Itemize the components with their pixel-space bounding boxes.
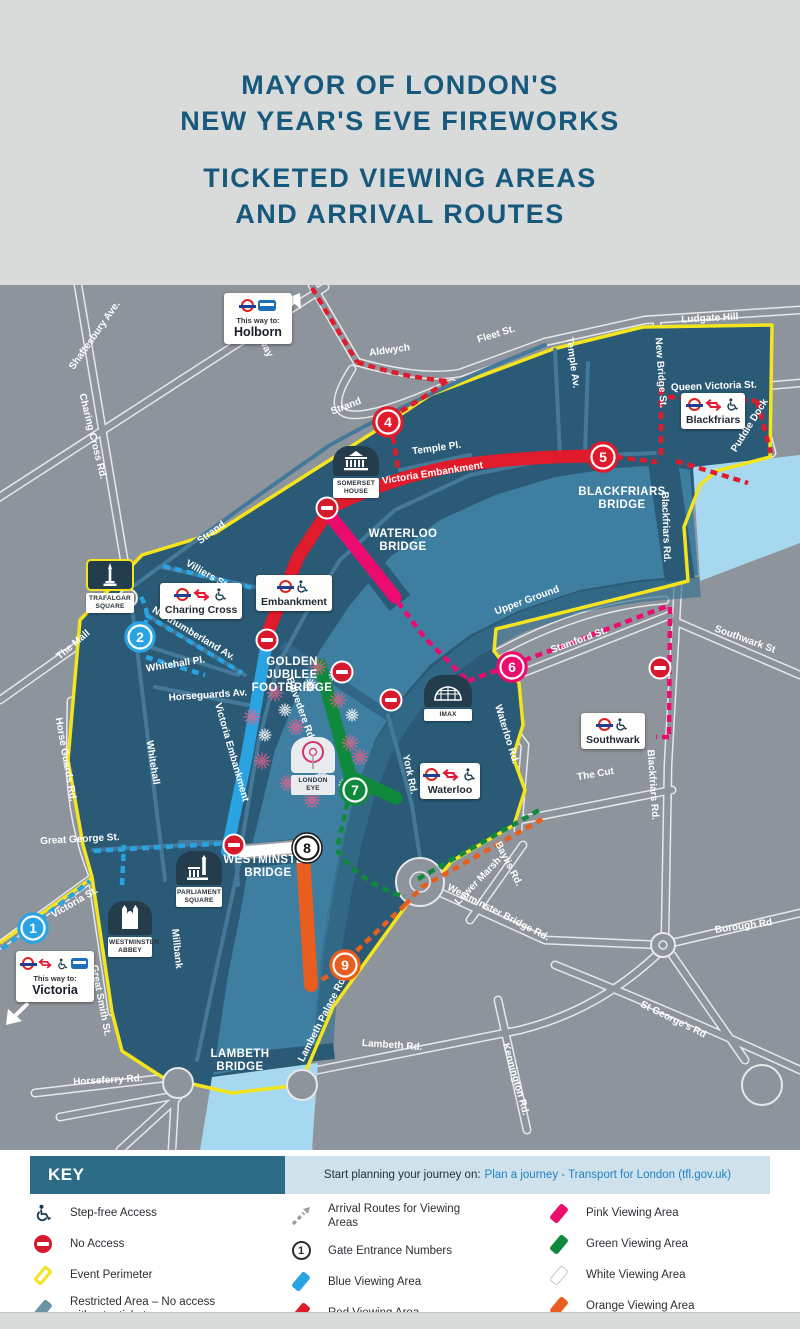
- key-item: No Access: [30, 1233, 288, 1255]
- key-item: Step-free Access: [30, 1202, 288, 1224]
- bus-icon: [258, 300, 276, 311]
- svg-text:6: 6: [508, 659, 516, 675]
- key-item: Pink Viewing Area: [546, 1202, 776, 1224]
- station-blackfriars: Blackfriars: [681, 393, 745, 429]
- area-white-icon: [546, 1264, 572, 1286]
- ferris-wheel-icon: [300, 740, 326, 770]
- station-name: Blackfriars: [686, 414, 740, 426]
- svg-text:9: 9: [341, 957, 349, 973]
- landmark-parliament-square: PARLIAMENT SQUARE: [176, 851, 222, 907]
- page-header: MAYOR OF LONDON'S NEW YEAR'S EVE FIREWOR…: [0, 0, 800, 285]
- area-green-icon: [546, 1233, 572, 1255]
- step-free-icon: [463, 768, 475, 781]
- landmark-london-eye: LONDON EYE: [291, 737, 335, 795]
- key-item: Event Perimeter: [30, 1264, 288, 1286]
- svg-text:7: 7: [351, 782, 359, 798]
- step-free-icon: [726, 398, 738, 411]
- landmark-imax: IMAX: [424, 675, 472, 721]
- key-column: Step-free AccessNo AccessEvent Perimeter…: [30, 1202, 288, 1324]
- step-free-icon: [30, 1202, 56, 1224]
- gate-entrance-5: 5: [588, 442, 618, 472]
- landmark-label: PARLIAMENT SQUARE: [176, 887, 222, 907]
- classical-building-icon: [341, 451, 371, 471]
- key-item-label: Gate Entrance Numbers: [328, 1244, 452, 1258]
- landmark-trafalgar-square: TRAFALGAR SQUARE: [86, 559, 134, 613]
- step-free-icon: [615, 718, 627, 731]
- subtitle-line-1: TICKETED VIEWING AREAS: [0, 161, 800, 197]
- journey-prefix: Start planning your journey on:: [324, 1169, 481, 1181]
- svg-text:4: 4: [384, 414, 392, 430]
- sign-prefix: This way to:: [22, 974, 88, 983]
- key-item: Blue Viewing Area: [288, 1271, 546, 1293]
- key-item-label: Arrival Routes for Viewing Areas: [328, 1202, 478, 1231]
- station-waterloo: Waterloo: [420, 763, 480, 799]
- big-ben-icon: [186, 855, 212, 881]
- station-southwark: Southwark: [581, 713, 645, 749]
- landmark-somerset-house: SOMERSET HOUSE: [333, 446, 379, 498]
- landmark-label: SOMERSET HOUSE: [333, 478, 379, 498]
- area-blue-icon: [288, 1271, 314, 1293]
- journey-planner-link[interactable]: Plan a journey - Transport for London (t…: [485, 1169, 732, 1181]
- key-legend: Step-free AccessNo AccessEvent Perimeter…: [30, 1202, 780, 1324]
- page-subtitle: TICKETED VIEWING AREAS AND ARRIVAL ROUTE…: [0, 139, 800, 232]
- no-access-icon: [257, 630, 278, 651]
- station-name: Embankment: [261, 596, 327, 608]
- svg-text:5: 5: [599, 449, 607, 465]
- gate-entrance-8: 8: [292, 833, 322, 863]
- map-key: KEY Start planning your journey on: Plan…: [0, 1150, 800, 1312]
- station-embankment: Embankment: [256, 575, 332, 611]
- underground-roundel-icon: [279, 580, 292, 593]
- gate-entrance-9: 9: [330, 950, 360, 980]
- sign-prefix: This way to:: [230, 316, 286, 325]
- landmark-label: IMAX: [424, 709, 472, 721]
- underground-roundel-icon: [241, 299, 254, 312]
- imax-dome-icon: [433, 681, 463, 701]
- map-canvas: Shaftesbury Ave.Charing Cross Rd.Kingswa…: [0, 285, 800, 1150]
- no-access-icon: [650, 658, 671, 679]
- journey-planner-bar: Start planning your journey on: Plan a j…: [285, 1156, 770, 1194]
- no-access-icon: [317, 498, 338, 519]
- svg-text:2: 2: [136, 629, 144, 645]
- landmark-label: WESTMINSTER ABBEY: [108, 937, 152, 957]
- underground-roundel-icon: [176, 588, 189, 601]
- sign-this-way-victoria: This way to: Victoria: [16, 951, 94, 1002]
- title-line-1: MAYOR OF LONDON'S: [0, 68, 800, 104]
- station-charing-cross: Charing Cross: [160, 583, 242, 619]
- key-column: Pink Viewing AreaGreen Viewing AreaWhite…: [546, 1202, 776, 1324]
- key-item-label: Event Perimeter: [70, 1268, 152, 1282]
- key-item: White Viewing Area: [546, 1264, 776, 1286]
- no-access-icon: [381, 690, 402, 711]
- bus-icon: [71, 958, 88, 969]
- key-title: KEY: [30, 1156, 285, 1194]
- gate-entrance-6: 6: [497, 652, 527, 682]
- landmark-label: LONDON EYE: [291, 775, 335, 795]
- underground-roundel-icon: [22, 957, 34, 970]
- key-item-label: Blue Viewing Area: [328, 1275, 421, 1289]
- national-rail-icon: [193, 589, 210, 601]
- key-item: Green Viewing Area: [546, 1233, 776, 1255]
- gate-entrance-7: 7: [340, 775, 370, 805]
- underground-roundel-icon: [688, 398, 701, 411]
- underground-roundel-icon: [425, 768, 438, 781]
- svg-text:8: 8: [303, 840, 311, 856]
- no-access-icon: [224, 835, 245, 856]
- orange-route: [303, 855, 311, 985]
- svg-text:1: 1: [29, 920, 37, 936]
- event-map: Shaftesbury Ave.Charing Cross Rd.Kingswa…: [0, 285, 800, 1150]
- sign-destination: Victoria: [22, 983, 88, 997]
- gate-entrance-1: 1: [18, 913, 48, 943]
- key-item-label: Green Viewing Area: [586, 1237, 688, 1251]
- fireworks-map-page: MAYOR OF LONDON'S NEW YEAR'S EVE FIREWOR…: [0, 0, 800, 1329]
- national-rail-icon: [38, 958, 52, 969]
- key-column: Arrival Routes for Viewing Areas1Gate En…: [288, 1202, 546, 1324]
- bridge-label: LAMBETHBRIDGE: [210, 1048, 269, 1073]
- abbey-icon: [119, 905, 141, 931]
- national-rail-icon: [705, 399, 722, 411]
- station-name: Charing Cross: [165, 604, 237, 616]
- arrival-icon: [288, 1205, 314, 1227]
- key-header: KEY Start planning your journey on: Plan…: [30, 1156, 770, 1194]
- gate-icon: 1: [288, 1240, 314, 1262]
- underground-roundel-icon: [598, 718, 611, 731]
- key-item: 1Gate Entrance Numbers: [288, 1240, 546, 1262]
- landmark-westminster-abbey: WESTMINSTER ABBEY: [108, 901, 152, 957]
- subtitle-line-2: AND ARRIVAL ROUTES: [0, 197, 800, 233]
- sign-this-way-holborn: This way to: Holborn: [224, 293, 292, 344]
- area-pink-icon: [546, 1202, 572, 1224]
- step-free-icon: [296, 580, 308, 593]
- footer-strip: [0, 1312, 800, 1329]
- gate-entrance-2: 2: [125, 622, 155, 652]
- step-free-icon: [214, 588, 226, 601]
- key-item-label: No Access: [70, 1237, 124, 1251]
- no-access-icon: [30, 1233, 56, 1255]
- key-item-label: White Viewing Area: [586, 1268, 686, 1282]
- station-name: Waterloo: [425, 784, 475, 796]
- key-item-label: Pink Viewing Area: [586, 1206, 678, 1220]
- sign-destination: Holborn: [230, 325, 286, 339]
- no-access-icon: [332, 662, 353, 683]
- national-rail-icon: [442, 769, 459, 781]
- page-title: MAYOR OF LONDON'S NEW YEAR'S EVE FIREWOR…: [0, 0, 800, 139]
- key-item-label: Step-free Access: [70, 1206, 157, 1220]
- key-item: Arrival Routes for Viewing Areas: [288, 1202, 546, 1231]
- monument-icon: [102, 563, 118, 587]
- title-line-2: NEW YEAR'S EVE FIREWORKS: [0, 104, 800, 140]
- step-free-icon: [57, 958, 67, 970]
- gate-entrance-4: 4: [373, 407, 403, 437]
- event-perimeter-icon: [30, 1264, 56, 1286]
- station-name: Southwark: [586, 734, 640, 746]
- landmark-label: TRAFALGAR SQUARE: [86, 593, 134, 613]
